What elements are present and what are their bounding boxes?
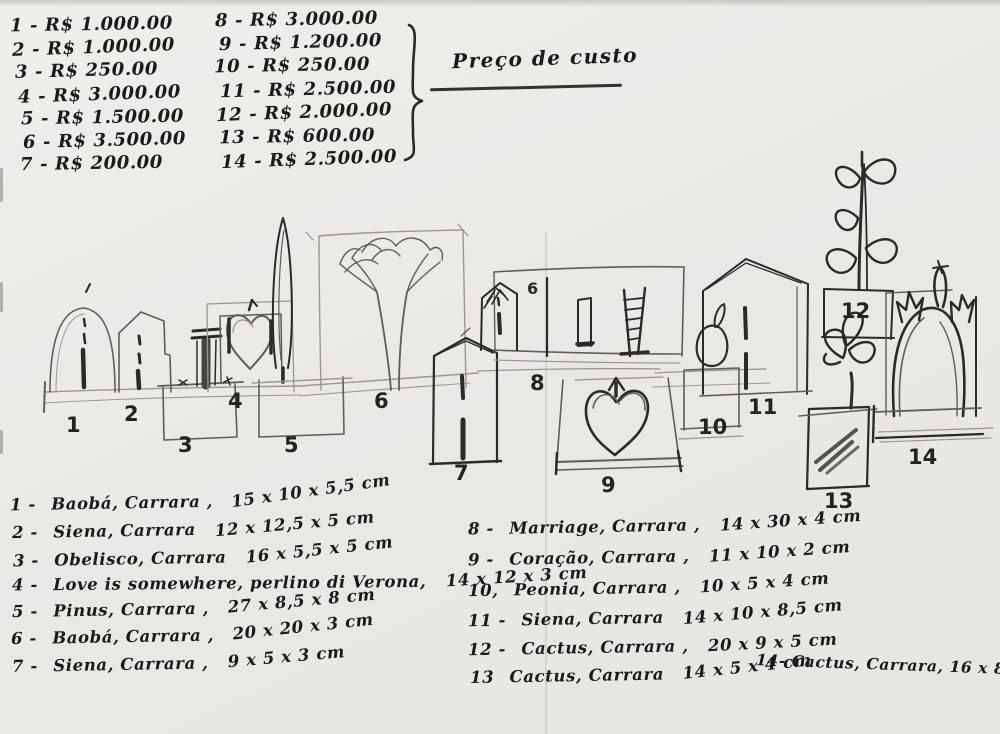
catalog-item-number: 3 - — [13, 551, 39, 570]
sketch-item-11 — [700, 259, 812, 396]
item-label-6: 6 — [374, 389, 389, 413]
price-line: 9 - R$ 1.200.00 — [219, 30, 382, 55]
sketch-item-5 — [252, 218, 352, 437]
catalog-item: 7 - Siena, Carrara , 9 x 5 x 3 cm — [12, 651, 346, 676]
paper-fold-line — [545, 232, 547, 734]
catalog-item-dims: 11 x 10 x 2 cm — [708, 537, 851, 566]
sketch-item-2 — [119, 312, 171, 392]
catalog-item-dims: 15 x 10 x 5,5 cm — [231, 470, 392, 511]
scan-edge-mark — [0, 282, 3, 312]
catalog-item-number: 11 - — [468, 611, 506, 631]
catalog-item-dims: 9 x 5 x 3 cm — [227, 642, 346, 671]
catalog-item-name: Cactus, Carrara — [509, 665, 664, 687]
catalog-item-number: 1 - — [10, 495, 36, 514]
sketch-item-10 — [679, 304, 743, 439]
catalog-item-number: 2 - — [12, 523, 38, 542]
catalog-item-dims: 12 x 12,5 x 5 cm — [214, 507, 375, 540]
item-label-2: 2 — [124, 402, 139, 426]
sketch-item-13 — [799, 313, 877, 489]
catalog-item: 2 - Siena, Carrara 12 x 12,5 x 5 cm — [12, 517, 376, 542]
price-line: 11 - R$ 2.500.00 — [220, 77, 397, 103]
catalog-item-name: Coração, Carrara , — [509, 546, 690, 568]
sketch-item-14 — [873, 261, 993, 442]
price-line: 12 - R$ 2.000.00 — [216, 99, 393, 126]
price-line: 5 - R$ 1.500.00 — [21, 106, 184, 130]
sketch-item-4 — [207, 300, 294, 392]
catalog-item-number: 8 - — [468, 519, 494, 538]
catalog-item-name: Baobá, Carrara , — [51, 492, 213, 514]
catalog-item-dims: 10 x 5 x 4 cm — [699, 568, 830, 596]
item-label-11: 11 — [748, 395, 777, 419]
price-line: 4 - R$ 3.000.00 — [18, 81, 182, 108]
catalog-item: 11 - Siena, Carrara 14 x 10 x 8,5 cm — [468, 605, 844, 631]
catalog-item-number: 4 - — [12, 575, 38, 594]
price-line: 14 - R$ 2.500.00 — [221, 146, 398, 173]
catalog-item-name: Siena, Carrara — [521, 608, 664, 629]
scanned-sketch-page: { "paper": { "bg": "#eae9e6", "ink": "#1… — [0, 0, 1000, 734]
catalog-item: 9 - Coração, Carrara , 11 x 10 x 2 cm — [468, 544, 851, 570]
scan-edge-mark — [0, 168, 3, 202]
price-line: 1 - R$ 1.000.00 — [10, 13, 173, 37]
item-label-8: 8 — [530, 371, 545, 395]
catalog-item-name: Cactus, Carrara , — [521, 636, 689, 658]
sketch-item-8: 6 — [481, 267, 684, 363]
catalog-item-number: 12 - — [468, 640, 506, 660]
heading-underline — [430, 84, 622, 92]
price-line: 13 - R$ 600.00 — [219, 125, 375, 149]
catalog-item-name: Siena, Carrara , — [53, 653, 209, 675]
sketch-drawing: 6 — [0, 140, 1000, 520]
sketch-item-3 — [158, 329, 243, 440]
item-label-12: 12 — [841, 299, 870, 323]
catalog-item-name: Peonia, Carrara , — [514, 577, 681, 599]
brace-mark — [395, 20, 445, 165]
sketch-item-7 — [430, 328, 501, 464]
scan-edge-mark — [0, 430, 3, 454]
sketch-number-labels: 1 2 3 4 5 6 7 8 9 10 11 12 13 14 — [66, 299, 937, 513]
price-line: 8 - R$ 3.000.00 — [215, 8, 378, 32]
catalog-item-name: Pinus, Carrara , — [53, 599, 209, 621]
catalog-item-number: 6 - — [11, 629, 37, 648]
catalog-item-number: 9 - — [468, 550, 494, 569]
catalog-item: 8 - Marriage, Carrara , 14 x 30 x 4 cm — [468, 513, 862, 539]
sketch-item-1 — [50, 284, 115, 392]
slab-mark-6: 6 — [527, 279, 538, 298]
catalog-item-name: Siena, Carrara — [53, 520, 196, 541]
catalog-item-dims: 14 x 10 x 8,5 cm — [682, 595, 843, 628]
item-label-9: 9 — [601, 473, 616, 497]
catalog-item-number: 13 — [470, 668, 494, 687]
sketch-item-9 — [556, 377, 683, 474]
catalog-item-name: Marriage, Carrara , — [509, 515, 700, 537]
item-label-7: 7 — [454, 461, 469, 485]
catalog-item-name: Obelisco, Carrara — [54, 548, 227, 570]
sketch-item-12 — [822, 152, 897, 339]
item-label-10: 10 — [698, 415, 727, 439]
item-label-4: 4 — [228, 389, 243, 413]
item-label-1: 1 — [66, 413, 81, 437]
item-label-5: 5 — [284, 433, 299, 457]
catalog-item-number: 10, — [468, 581, 499, 601]
catalog-item: 3 - Obelisco, Carrara 16 x 5,5 x 5 cm — [13, 545, 394, 571]
catalog-item-number: 7 - — [12, 656, 38, 675]
item-label-3: 3 — [178, 433, 193, 457]
sketch-item-6 — [306, 224, 468, 390]
price-line: 2 - R$ 1.000.00 — [12, 34, 176, 61]
item-label-14: 14 — [908, 445, 937, 469]
heading-preco-de-custo: Preço de custo — [452, 43, 639, 73]
catalog-item-name: Baobá, Carrara , — [52, 626, 214, 648]
catalog-item-dims: 14 x 30 x 4 cm — [719, 506, 862, 535]
catalog-item-number: 5 - — [12, 602, 38, 621]
price-line: 10 - R$ 250.00 — [214, 54, 370, 78]
price-line: 7 - R$ 200.00 — [20, 152, 163, 175]
shelf-line — [44, 369, 770, 412]
price-line: 3 - R$ 250.00 — [15, 58, 158, 83]
scan-edge-shadow — [0, 0, 1000, 7]
price-line: 6 - R$ 3.500.00 — [23, 128, 186, 153]
